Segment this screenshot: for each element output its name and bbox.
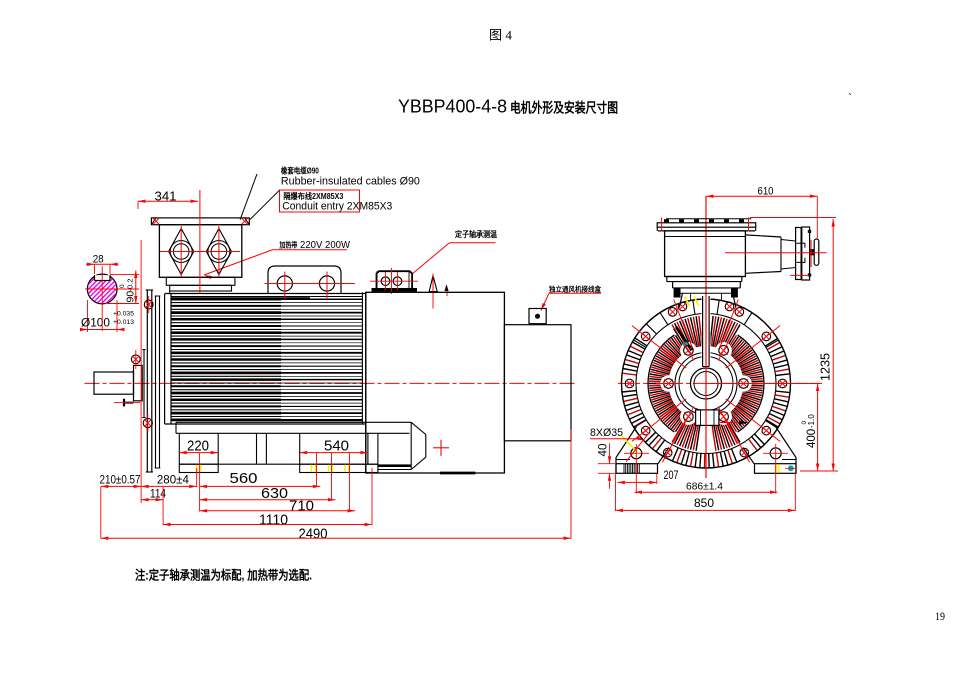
svg-text:1110: 1110	[259, 512, 288, 529]
svg-text:YBBP400-4-8: YBBP400-4-8	[398, 97, 507, 117]
svg-text:1235: 1235	[819, 353, 833, 381]
svg-text:Rubber-insulated cables Ø90: Rubber-insulated cables Ø90	[281, 175, 420, 187]
svg-text:850: 850	[694, 498, 714, 510]
svg-text:定子轴承测温: 定子轴承测温	[454, 229, 497, 239]
svg-text:图 4: 图 4	[489, 28, 512, 43]
svg-text:540: 540	[324, 438, 349, 455]
svg-text:隔爆布线2XM85X3: 隔爆布线2XM85X3	[283, 191, 343, 201]
svg-text:560: 560	[230, 470, 258, 487]
svg-text:`: `	[848, 91, 852, 105]
svg-text:210±0.57: 210±0.57	[100, 475, 141, 487]
svg-text:Ø100: Ø100	[81, 316, 110, 330]
svg-text:220: 220	[187, 438, 209, 455]
svg-text:独立通风机接线盒: 独立通风机接线盒	[548, 285, 602, 294]
svg-text:19: 19	[935, 611, 945, 623]
svg-text:Conduit entry 2XM85X3: Conduit entry 2XM85X3	[282, 201, 392, 213]
svg-text:注:定子轴承测温为标配, 加热带为选配.: 注:定子轴承测温为标配, 加热带为选配.	[135, 568, 312, 583]
svg-text:橡套电缆Ø90: 橡套电缆Ø90	[281, 166, 319, 176]
svg-text:686±1.4: 686±1.4	[686, 481, 723, 493]
svg-text:加热带: 加热带	[279, 240, 298, 250]
svg-text:207: 207	[664, 470, 679, 482]
svg-text:2490: 2490	[299, 526, 328, 543]
svg-text:28: 28	[93, 254, 104, 266]
svg-text:+0.035: +0.035	[113, 311, 134, 318]
svg-text:-0.2: -0.2	[126, 279, 135, 292]
svg-text:0: 0	[119, 284, 126, 288]
svg-text:8XØ35: 8XØ35	[590, 427, 623, 439]
svg-text:400: 400	[806, 429, 818, 448]
svg-text:-1.0: -1.0	[807, 414, 816, 428]
svg-text:+0.013: +0.013	[113, 319, 134, 326]
svg-text:710: 710	[289, 498, 314, 515]
svg-text:0: 0	[801, 421, 808, 425]
svg-text:280±4: 280±4	[157, 475, 190, 487]
svg-text:40: 40	[596, 443, 610, 456]
svg-text:电机外形及安装尺寸图: 电机外形及安装尺寸图	[510, 100, 618, 116]
